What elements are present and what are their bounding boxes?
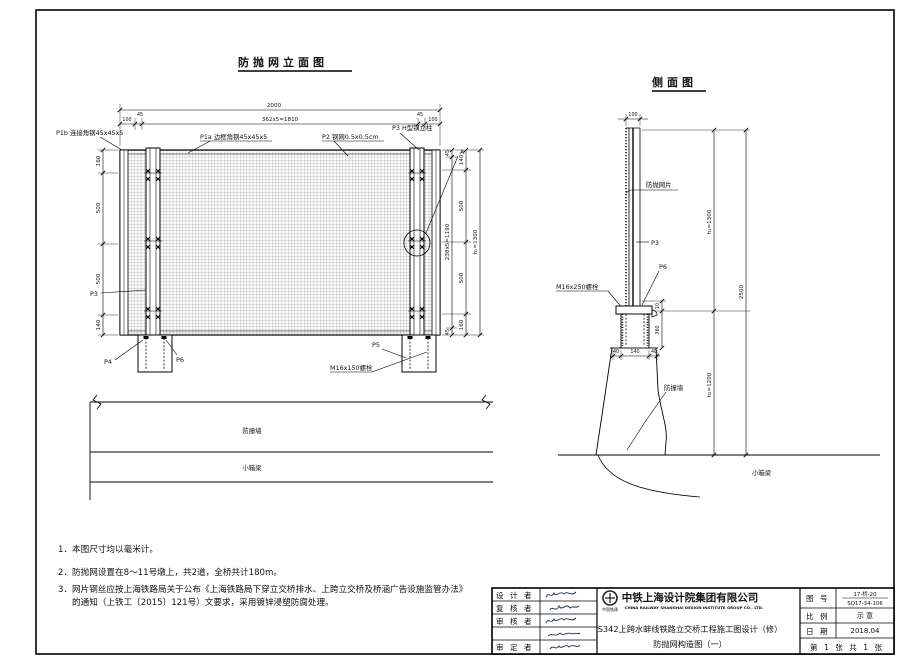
mesh-panel xyxy=(120,150,440,335)
dim-140: 140 xyxy=(630,349,639,355)
crash-wall-elevation xyxy=(90,395,493,500)
dim-40l: 40 xyxy=(613,349,619,355)
side-dim-2500: 2500 xyxy=(739,284,745,299)
dim-right-1190: 238x5=1190 xyxy=(445,223,451,260)
side-wall-label: 防撞墙 xyxy=(664,383,684,392)
side-p6-label: P6 xyxy=(659,263,667,271)
company-name: 中铁上海设计院集团有限公司 xyxy=(622,591,759,604)
role-checker: 复 核 者 xyxy=(496,603,534,613)
side-p3-label: P3 xyxy=(651,239,659,247)
left-post xyxy=(146,148,160,335)
note-3: 3．网片钢丝应按上海铁路局关于公布《上海铁路局下穿立交桥排水、上跨立交桥及桥涵广… xyxy=(58,583,467,595)
dim-left-140: 140 xyxy=(96,319,102,330)
left-base xyxy=(138,335,172,372)
side-title: 侧面图 xyxy=(652,75,697,89)
field-drawing-no-label: 图 号 xyxy=(806,594,830,603)
label-p5: P5 xyxy=(372,341,380,349)
field-date-label: 日 期 xyxy=(806,627,830,636)
side-dim-h1: h₁=1300 xyxy=(707,209,713,234)
girder-curve xyxy=(598,455,700,497)
dim-left-500b: 500 xyxy=(96,273,102,284)
role-approver: 审 定 者 xyxy=(496,642,534,652)
dim-left-160: 160 xyxy=(96,155,102,166)
dim-45-right: 45 xyxy=(417,112,423,118)
side-base xyxy=(616,306,657,348)
drawing-no-2: SQ17-34-106 xyxy=(847,601,883,607)
note-3-cont: 的通知（上铁工〔2015〕121号）文要求，采用镀锌浸塑防腐处理。 xyxy=(72,596,334,608)
dim-right-140: 140 xyxy=(459,154,465,165)
drawing-title: 防抛网构造图（一） xyxy=(653,639,727,649)
dim-h1: h₁=1300 xyxy=(473,229,479,254)
role-designer: 设 计 者 xyxy=(496,590,534,600)
right-base xyxy=(402,335,436,372)
elevation-view: 防抛网立面图 A 2000 xyxy=(56,55,493,500)
note-2: 2．防抛网设置在8～11号墩上，共2道，全桥共计180m。 xyxy=(58,566,282,578)
label-m16x150: M16x150螺栓 xyxy=(330,363,373,372)
role-reviewer: 审 核 者 xyxy=(496,616,534,626)
label-p4: P4 xyxy=(104,358,112,366)
dim-45-left: 45 xyxy=(137,112,143,118)
date-value: 2018.04 xyxy=(851,627,880,635)
side-dim-100: 100 xyxy=(628,112,637,118)
cad-canvas: 防抛网立面图 A 2000 xyxy=(0,0,900,666)
side-dim-h2: h₂=1200 xyxy=(707,372,713,397)
dim-right-500b: 500 xyxy=(459,272,465,283)
side-m16x250-label: M16x250螺栓 xyxy=(556,282,599,291)
dim-right-45t: 45 xyxy=(445,150,451,156)
dim-40r: 40 xyxy=(651,349,657,355)
notes: 1．本图尺寸均以毫米计。 2．防抛网设置在8～11号墩上，共2道，全桥共计180… xyxy=(58,543,467,608)
label-p6: P6 xyxy=(176,356,184,364)
side-girder-label: 小箱梁 xyxy=(752,468,772,477)
company-name-en: CHINA RAILWAY SHANGHAI DESIGN INSTITUTE … xyxy=(625,605,764,610)
sheet-number: 第 1 张 共 1 张 xyxy=(810,642,884,652)
label-p1a: P1a 边框角钢45x45x5 xyxy=(200,132,267,141)
side-wall xyxy=(596,348,666,455)
side-view: 侧面图 100 防抛网片 P3 P6 M16x250螺栓 xyxy=(556,75,880,497)
dim-right-45b: 45 xyxy=(445,329,451,335)
project-title: S342上跨水蚌线铁路立交桥工程施工图设计（修） xyxy=(598,624,783,634)
dim-right-500a: 500 xyxy=(459,200,465,211)
label-p2: P2 钢网0.5x0.5cm xyxy=(322,133,379,141)
wall-label: 防撞墙 xyxy=(242,426,262,435)
dim-left-500a: 500 xyxy=(96,202,102,213)
dim-10: 10 xyxy=(655,303,661,309)
dim-2000: 2000 xyxy=(267,103,282,109)
girder-label: 小箱梁 xyxy=(242,463,262,472)
note-1: 1．本图尺寸均以毫米计。 xyxy=(58,543,158,555)
drawing-sheet: 防抛网立面图 A 2000 xyxy=(0,0,900,666)
title-block: 设 计 者 复 核 者 审 核 者 审 定 者 中国铁建 中铁上海设计院集团有限… xyxy=(492,588,894,654)
label-p3: P3 xyxy=(90,290,98,298)
dim-360: 360 xyxy=(655,325,661,334)
drawing-no-1: 17-桥-20 xyxy=(854,590,878,598)
dim-100-right: 100 xyxy=(428,117,437,123)
right-post xyxy=(410,148,424,335)
emblem-text: 中国铁建 xyxy=(602,606,618,612)
side-net-label: 防抛网片 xyxy=(646,180,672,189)
dim-right-160: 160 xyxy=(459,319,465,330)
scale-value: 示 意 xyxy=(857,611,873,620)
dim-100-left: 100 xyxy=(122,117,131,123)
elevation-title: 防抛网立面图 xyxy=(238,55,328,69)
field-scale-label: 比 例 xyxy=(806,611,830,621)
label-p3-column: P3 H型钢立柱 xyxy=(392,123,433,132)
dim-1810: 362x5=1810 xyxy=(262,117,299,123)
label-p1b: P1b 连接角钢45x45x5 xyxy=(56,128,123,137)
